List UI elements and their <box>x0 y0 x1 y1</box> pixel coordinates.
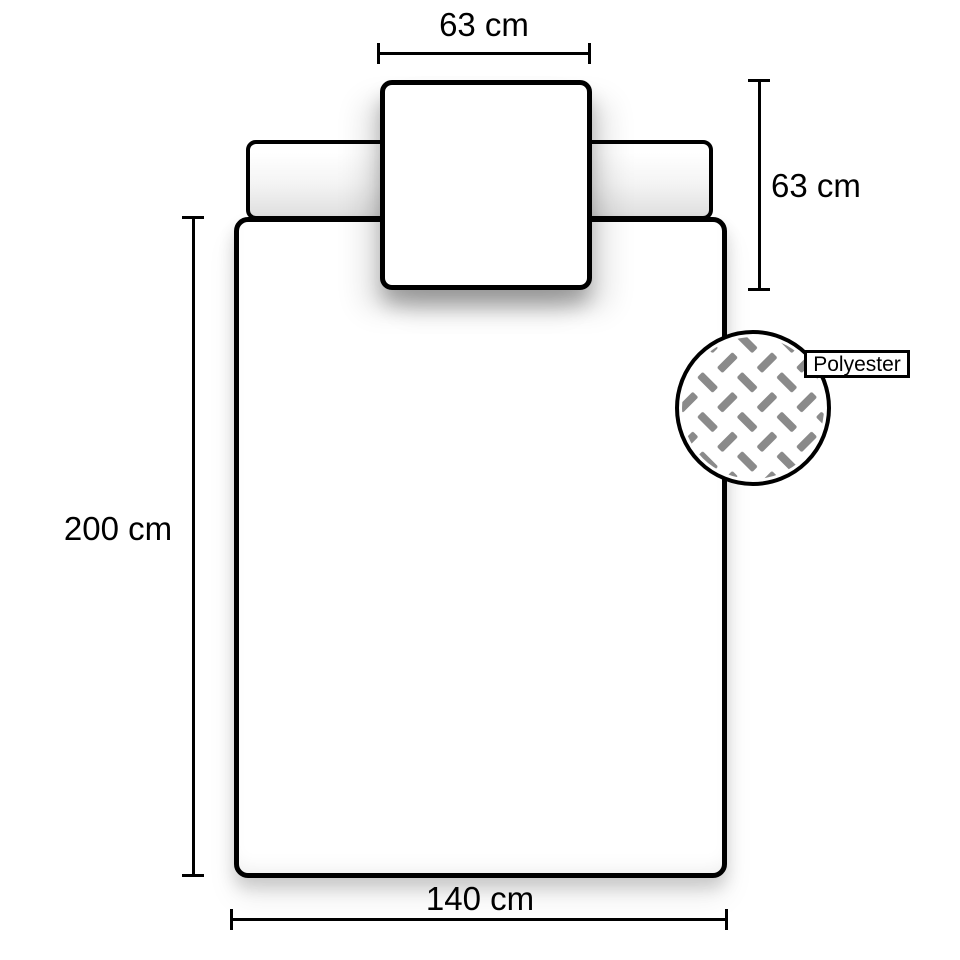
material-label: Polyester <box>804 350 910 378</box>
tick <box>748 288 770 291</box>
tick <box>377 43 380 64</box>
dimension-line <box>378 52 590 55</box>
tick <box>182 874 204 877</box>
pillow-width-label: 63 cm <box>378 6 590 44</box>
tick <box>748 79 770 82</box>
duvet-width-label: 140 cm <box>380 880 580 918</box>
pillowcase <box>380 80 592 290</box>
duvet-cover <box>234 217 727 878</box>
dimension-line <box>231 918 727 921</box>
duvet-length-label: 200 cm <box>38 510 198 548</box>
tick <box>588 43 591 64</box>
tick <box>725 909 728 930</box>
material-name: Polyester <box>813 354 901 375</box>
bedding-dimension-diagram: 63 cm 63 cm 200 cm 140 cm <box>0 0 960 960</box>
fabric-weave-icon <box>668 323 838 493</box>
dimension-line <box>758 80 761 290</box>
pillow-height-label: 63 cm <box>771 167 861 205</box>
tick <box>182 216 204 219</box>
tick <box>230 909 233 930</box>
